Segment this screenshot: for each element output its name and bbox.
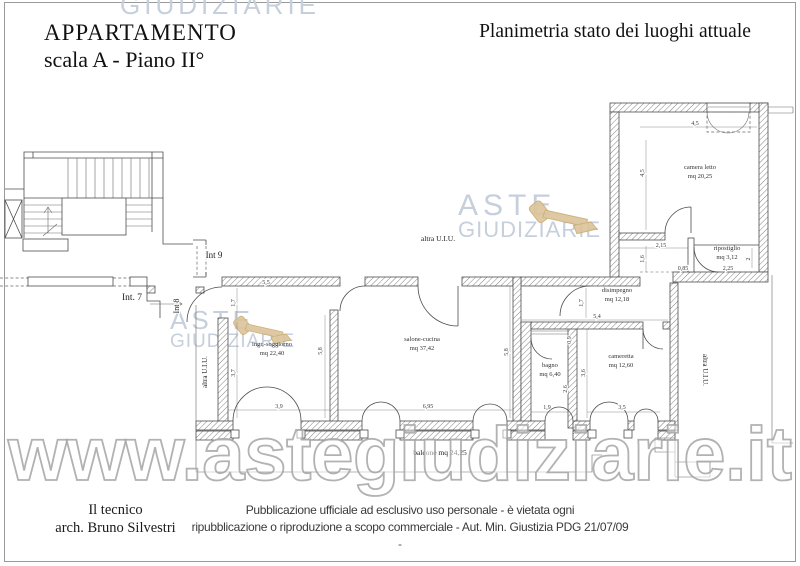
elevator-cross (5, 200, 22, 238)
door-cameretta (643, 329, 663, 349)
room-labels: camera lettomq 20,25ripostigliomq 3,12di… (252, 164, 740, 378)
plan-label: altra U.I.U. (701, 354, 709, 386)
dimension-label: 5,8 (318, 347, 324, 355)
plan-label: Int 9 (206, 250, 223, 260)
dimension-label: 0,85 (678, 266, 689, 272)
disclaimer-line2: ripubblicazione o riproduzione a scopo c… (140, 519, 680, 536)
walls (147, 103, 768, 440)
dimension-label: 3,6 (581, 369, 587, 377)
dimension-label: 2,6 (563, 385, 569, 393)
dimension-label: 5,8 (504, 348, 510, 356)
door-disimpegno (560, 286, 590, 316)
window-casement (707, 112, 750, 132)
plan-label: altra U.I.U. (421, 234, 455, 243)
dimension-label: 1,7 (579, 299, 585, 307)
dimension-label: 1,6 (640, 255, 646, 263)
disclaimer-block: Pubblicazione ufficiale ad esclusivo uso… (140, 502, 680, 536)
door-entry-int8 (187, 287, 222, 322)
stair-landing (62, 198, 126, 235)
door-bagno (531, 338, 552, 359)
stairwell (5, 152, 163, 251)
stair-direction-arrow (43, 207, 57, 236)
dimension-label: 1,7 (231, 299, 237, 307)
room-label: disimpegnomq 12,18 (602, 287, 632, 303)
page-title: APPARTAMENTO (44, 20, 237, 46)
room-label: ripostigliomq 3,12 (714, 245, 741, 261)
dimension-label: 2,25 (723, 266, 734, 272)
disclaimer-line1: Pubblicazione ufficiale ad esclusivo uso… (140, 502, 680, 519)
door-salone-2 (418, 286, 458, 326)
room-label: ingr.-soggiornomq 22,40 (252, 341, 292, 357)
room-label: salone-cucinamq 37,42 (404, 336, 440, 352)
door-salone (340, 286, 365, 311)
dimension-label: 2,15 (656, 243, 667, 249)
plan-label: Int. 7 (122, 293, 142, 303)
dimension-label: 2 (746, 258, 752, 261)
watermark-url: www.astegiudiziarie.it (0, 408, 800, 508)
dimension-label: 4,5 (640, 169, 646, 177)
dimension-label: 5,5 (262, 280, 270, 286)
page-subtitle: Planimetria stato dei luoghi attuale (450, 21, 780, 43)
dimension-label: 4,5 (691, 121, 699, 127)
dimension-label: 0,9 (567, 336, 573, 344)
room-label: bagnomq 6,40 (539, 362, 560, 378)
svg-text:www.astegiudiziarie.it: www.astegiudiziarie.it (7, 412, 792, 497)
scanned-floorplan-page: GIUDIZIARIE ASTE GIUDIZIARIE ASTE GIUDIZ… (0, 0, 800, 566)
dimension-label: 3,7 (231, 369, 237, 377)
page-title-line2: scala A - Piano II° (44, 47, 204, 73)
plan-label: Int 8 (172, 299, 181, 314)
room-label: camera lettomq 20,25 (684, 164, 716, 180)
window (707, 103, 750, 112)
disclaimer-dash: - (0, 537, 800, 551)
plan-label: altra U.I.U. (201, 356, 209, 388)
door-camera-letto (665, 207, 691, 233)
room-label: camerettamq 12,60 (608, 353, 633, 369)
dimension-label: 5,4 (593, 314, 601, 320)
